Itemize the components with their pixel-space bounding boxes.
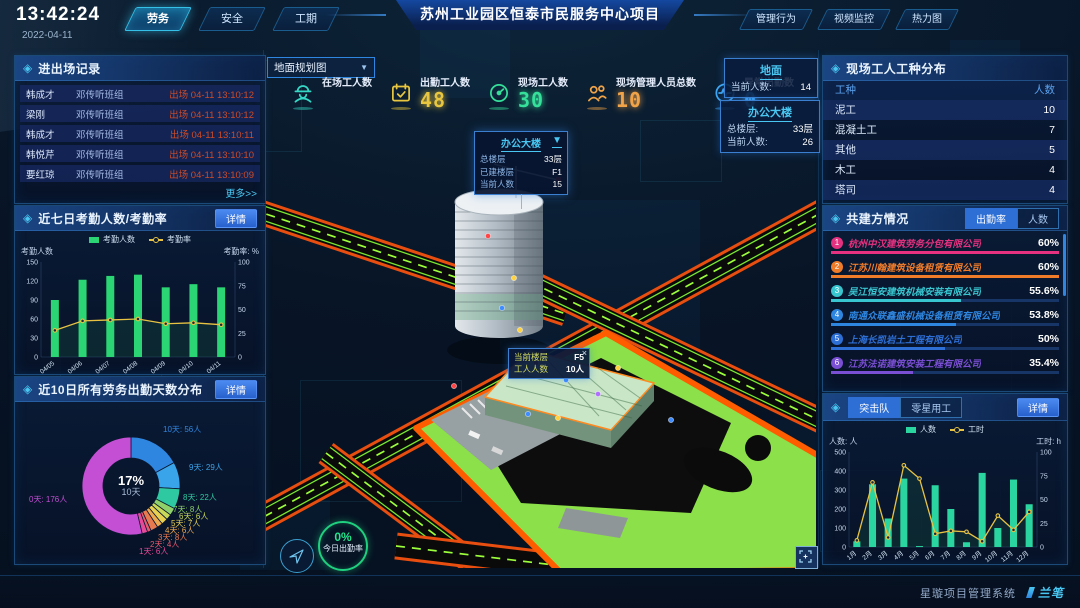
info-value: F1 — [552, 166, 562, 179]
stat-label: 在场工人数 — [322, 78, 372, 90]
svg-text:300: 300 — [834, 488, 846, 495]
today-attendance-gauge: 0% 今日出勤率 — [318, 521, 368, 571]
stat-value: 30 — [518, 90, 568, 111]
info-row: 当前人数:14 — [731, 81, 811, 94]
info-value: 33层 — [793, 123, 813, 136]
stat-出勤工人数: 出勤工人数48 — [388, 78, 470, 111]
fullscreen-icon — [796, 547, 815, 566]
tab-出勤率[interactable]: 出勤率 — [965, 208, 1017, 229]
attendance-rate: 60% — [1038, 237, 1059, 249]
panel-title: 共建方情况 — [846, 210, 909, 227]
tab-label: 管理行为 — [756, 10, 796, 29]
worker-name: 韩悦芹 — [26, 147, 76, 161]
brand-logo-icon — [1026, 587, 1035, 598]
left-axis-unit: 考勤人数 — [21, 246, 53, 257]
info-value: 10人 — [566, 363, 584, 375]
worker-type: 塔司 — [835, 180, 856, 200]
legend-line — [950, 429, 964, 431]
legend-label: 考勤人数 — [103, 234, 135, 245]
company-name: 江苏法诺建筑安装工程有限公司 — [848, 356, 981, 370]
svg-text:3月: 3月 — [876, 549, 889, 562]
diamond-icon: ◈ — [831, 212, 840, 224]
info-label: 总楼层 — [480, 153, 506, 166]
panel-title: 进出场记录 — [38, 60, 101, 77]
worker-type: 木工 — [835, 160, 856, 180]
svg-text:50: 50 — [238, 307, 246, 314]
attendance-rate: 35.4% — [1029, 357, 1059, 369]
stat-value: 48 — [420, 90, 470, 111]
attendance-chart: 0306090120150025507510004/0504/0604/0704… — [15, 257, 261, 375]
chevron-down-icon[interactable]: ▼ — [552, 135, 562, 148]
table-row: 其他5 — [823, 140, 1067, 160]
records-list: 韩成才邓传听班组出场 04-11 13:10:12梁刚邓传听班组出场 04-11… — [15, 81, 265, 182]
info-row: 工人人数10人 — [514, 363, 584, 375]
tower-overlay-card[interactable]: 办公大楼 总楼层:33层当前人数:26 — [720, 100, 820, 153]
tab-零星用工[interactable]: 零星用工 — [900, 397, 962, 418]
work-group: 邓传听班组 — [76, 87, 156, 101]
chart-legend: 考勤人数考勤率 — [15, 233, 265, 246]
clock-time: 13:42:24 — [16, 4, 100, 25]
rank-badge: 3 — [831, 285, 843, 297]
rank-badge: 6 — [831, 357, 843, 369]
compass-icon — [287, 546, 307, 566]
tab-视频监控[interactable]: 视频监控 — [817, 9, 891, 30]
axis-unit-labels: 人数: 人 工时: h — [823, 436, 1067, 447]
worker-name: 韩成才 — [26, 87, 76, 101]
tab-突击队[interactable]: 突击队 — [848, 397, 900, 418]
svg-text:4月: 4月 — [892, 549, 905, 562]
svg-text:1月: 1月 — [845, 549, 858, 562]
header-left-tabs: 劳务安全工期 — [130, 7, 334, 31]
svg-text:100: 100 — [834, 526, 846, 533]
info-value: 26 — [802, 136, 813, 149]
donut-label: 9天: 29人 — [189, 462, 223, 473]
rank-badge: 2 — [831, 261, 843, 273]
svg-text:100: 100 — [238, 260, 250, 267]
donut-label: 10天: 56人 — [163, 424, 201, 435]
worker-type-distribution-panel: ◈ 现场工人工种分布 工种 人数 泥工10混凝土工7其他5木工4塔司4 — [822, 55, 1068, 204]
partner-item[interactable]: 1杭州中汉建筑劳务分包有限公司60% — [831, 234, 1059, 254]
scrollbar[interactable] — [1063, 234, 1066, 296]
info-label: 已建楼层 — [480, 166, 514, 179]
worker-count: 4 — [1049, 160, 1055, 180]
svg-text:150: 150 — [26, 260, 38, 267]
rank-badge: 4 — [831, 309, 843, 321]
worker-type-table: 泥工10混凝土工7其他5木工4塔司4 — [823, 100, 1067, 200]
work-group: 邓传听班组 — [76, 167, 156, 181]
record-row[interactable]: 韩成才邓传听班组出场 04-11 13:10:11 — [20, 125, 260, 142]
svg-text:10月: 10月 — [983, 549, 999, 564]
legend-item: 考勤率 — [149, 234, 191, 245]
svg-text:04/08: 04/08 — [122, 360, 139, 375]
diamond-icon: ◈ — [831, 62, 840, 74]
work-group: 邓传听班组 — [76, 107, 156, 121]
legend-line — [149, 239, 163, 241]
worker-type: 其他 — [835, 140, 856, 160]
stat-现场工人数: 现场工人数30 — [486, 78, 568, 111]
company-name: 吴江恒安建筑机械安装有限公司 — [848, 284, 981, 298]
exit-time: 出场 04-11 13:10:09 — [169, 167, 254, 181]
worker-name: 韩成才 — [26, 127, 76, 141]
tab-人数[interactable]: 人数 — [1017, 208, 1059, 229]
svg-text:30: 30 — [30, 336, 38, 343]
chevron-down-icon: ▼ — [360, 63, 368, 72]
panel-title: 现场工人工种分布 — [846, 60, 946, 77]
gauge-icon — [486, 80, 512, 110]
company-name: 上海长凯岩土工程有限公司 — [848, 332, 962, 346]
svg-text:90: 90 — [30, 298, 38, 305]
worker-type: 泥工 — [835, 100, 856, 120]
rank-badge: 5 — [831, 333, 843, 345]
right-axis-unit: 工时: h — [1036, 436, 1061, 447]
attendance-rate: 60% — [1038, 261, 1059, 273]
svg-text:04/09: 04/09 — [150, 360, 167, 375]
partners-list: 1杭州中汉建筑劳务分包有限公司60%2江苏川翰建筑设备租赁有限公司60%3吴江恒… — [823, 231, 1067, 374]
tab-label: 视频监控 — [834, 10, 874, 29]
partner-item[interactable]: 3吴江恒安建筑机械安装有限公司55.6% — [831, 282, 1059, 302]
more-link[interactable]: 更多>> — [225, 185, 257, 200]
panel-header: ◈ 共建方情况 出勤率人数 — [823, 206, 1067, 231]
entry-exit-records-panel: ◈ 进出场记录 韩成才邓传听班组出场 04-11 13:10:12梁刚邓传听班组… — [14, 55, 266, 204]
legend-item: 人数 — [906, 424, 936, 435]
worker-count: 7 — [1049, 120, 1055, 140]
tab-label: 安全 — [221, 8, 243, 30]
footer: 星璇项目管理系统 兰笔 — [0, 575, 1080, 608]
partners-tabs: 出勤率人数 — [965, 208, 1059, 229]
info-label: 当前人数: — [727, 136, 768, 149]
diamond-icon: ◈ — [23, 212, 32, 224]
svg-text:400: 400 — [834, 469, 846, 476]
legend-label: 人数 — [920, 424, 936, 435]
legend-item: 工时 — [950, 424, 984, 435]
svg-text:75: 75 — [238, 283, 246, 290]
svg-text:9月: 9月 — [970, 549, 983, 562]
donut-chart-area: 17% 10天 10天: 56人9天: 29人8天: 22人7天: 8人6天: … — [15, 402, 265, 563]
brand-logo: 兰笔 — [1026, 584, 1064, 601]
clock-date: 2022-04-11 — [22, 30, 72, 41]
panel-title: 近10日所有劳务出勤天数分布 — [38, 381, 202, 398]
svg-text:04/10: 04/10 — [178, 360, 195, 375]
header-right-tabs: 管理行为视频监控热力图 — [744, 9, 954, 30]
system-name: 星璇项目管理系统 — [920, 585, 1016, 601]
company-name: 杭州中汉建筑劳务分包有限公司 — [848, 236, 981, 250]
attendance-rate: 50% — [1038, 333, 1059, 345]
teams-tabs: 突击队零星用工 — [848, 397, 962, 418]
record-row[interactable]: 韩悦芹邓传听班组出场 04-11 13:10:10 — [20, 145, 260, 162]
worker-type: 混凝土工 — [835, 120, 877, 140]
info-label: 总楼层: — [727, 123, 758, 136]
info-label: 工人人数 — [514, 363, 548, 375]
svg-text:04/07: 04/07 — [94, 360, 111, 375]
legend-label: 考勤率 — [167, 234, 191, 245]
info-row: 总楼层33层 — [480, 153, 562, 166]
title-banner: 苏州工业园区恒泰市民服务中心项目 — [396, 0, 684, 30]
panel-header: ◈ 近10日所有劳务出勤天数分布 详情 — [15, 377, 265, 402]
work-group: 邓传听班组 — [76, 127, 156, 141]
info-row: 当前人数15 — [480, 178, 562, 191]
tab-热力图[interactable]: 热力图 — [895, 9, 959, 30]
detail-button[interactable]: 详情 — [215, 209, 257, 228]
partners-panel: ◈ 共建方情况 出勤率人数 1杭州中汉建筑劳务分包有限公司60%2江苏川翰建筑设… — [822, 205, 1068, 392]
info-value: 15 — [553, 178, 562, 191]
diamond-icon: ◈ — [23, 383, 32, 395]
legend-label: 工时 — [968, 424, 984, 435]
exit-time: 出场 04-11 13:10:10 — [169, 147, 254, 161]
exit-time: 出场 04-11 13:10:12 — [169, 87, 254, 101]
info-row: 已建楼层F1 — [480, 166, 562, 179]
svg-text:0: 0 — [1040, 545, 1044, 552]
panel-header: ◈ 现场工人工种分布 — [823, 56, 1067, 81]
company-name: 南通众联鑫盛机械设备租赁有限公司 — [848, 308, 1000, 322]
people-icon — [584, 80, 610, 110]
attendance-rate: 55.6% — [1029, 285, 1059, 297]
svg-text:60: 60 — [30, 317, 38, 324]
exit-time: 出场 04-11 13:10:11 — [170, 127, 254, 141]
svg-text:75: 75 — [1040, 473, 1048, 480]
svg-text:12月: 12月 — [1015, 549, 1031, 564]
stat-在场工人数: 在场工人数 — [290, 78, 372, 111]
fullscreen-button[interactable] — [795, 546, 818, 569]
panel-header: ◈ 近七日考勤人数/考勤率 详情 — [15, 206, 265, 231]
partner-item[interactable]: 6江苏法诺建筑安装工程有限公司35.4% — [831, 354, 1059, 374]
stat-现场管理人员总数: 现场管理人员总数10 — [584, 78, 696, 111]
ground-overlay-card[interactable]: 地面 当前人数:14 — [724, 58, 818, 98]
info-value: 33层 — [544, 153, 562, 166]
svg-text:120: 120 — [26, 279, 38, 286]
info-row: 当前人数:26 — [727, 136, 813, 149]
distribution-donut — [15, 402, 263, 563]
donut-label: 8天: 22人 — [183, 492, 217, 503]
tab-label: 劳务 — [147, 8, 169, 30]
svg-text:7月: 7月 — [939, 549, 952, 562]
exit-time: 出场 04-11 13:10:12 — [169, 107, 254, 121]
legend-swatch — [89, 237, 99, 243]
tab-管理行为[interactable]: 管理行为 — [739, 9, 813, 30]
svg-text:04/06: 04/06 — [67, 360, 84, 375]
partner-item[interactable]: 4南通众联鑫盛机械设备租赁有限公司53.8% — [831, 306, 1059, 326]
table-row: 塔司4 — [823, 180, 1067, 200]
tab-安全[interactable]: 安全 — [198, 7, 266, 31]
tab-工期[interactable]: 工期 — [272, 7, 340, 31]
record-row[interactable]: 要红琼邓传听班组出场 04-11 13:10:09 — [20, 165, 260, 182]
tab-label: 热力图 — [912, 10, 942, 29]
svg-text:2月: 2月 — [861, 549, 874, 562]
tab-label: 工期 — [295, 8, 317, 30]
worker-icon — [290, 80, 316, 110]
tab-劳务[interactable]: 劳务 — [124, 7, 192, 31]
panel-header: ◈ 进出场记录 — [15, 56, 265, 81]
chart-legend: 人数工时 — [823, 423, 1067, 436]
svg-text:04/05: 04/05 — [39, 360, 56, 375]
table-row: 木工4 — [823, 160, 1067, 180]
panel-header: ◈ 突击队零星用工 详情 — [823, 394, 1067, 421]
company-name: 江苏川翰建筑设备租赁有限公司 — [848, 260, 981, 274]
clock: 13:42:24 2022-04-11 — [16, 5, 100, 43]
building-popup[interactable]: 办公大楼 ▼ 总楼层33层已建楼层F1当前人数15 — [474, 131, 568, 195]
legend-swatch — [906, 427, 916, 433]
stat-value — [322, 90, 372, 111]
svg-text:0: 0 — [34, 355, 38, 362]
floor-tooltip[interactable]: × 当前楼层F5工人人数10人 — [508, 348, 590, 379]
svg-text:11月: 11月 — [999, 549, 1014, 563]
svg-text:200: 200 — [834, 507, 846, 514]
info-value: 14 — [800, 81, 811, 94]
donut-label: 0天: 176人 — [29, 494, 67, 505]
teams-chart-panel: ◈ 突击队零星用工 详情 人数工时 人数: 人 工时: h 0100200300… — [822, 393, 1068, 565]
attendance-days-distribution-panel: ◈ 近10日所有劳务出勤天数分布 详情 17% 10天 10天: 56人9天: … — [14, 376, 266, 565]
record-row[interactable]: 韩成才邓传听班组出场 04-11 13:10:12 — [20, 85, 260, 102]
diamond-icon: ◈ — [831, 401, 840, 413]
svg-text:6月: 6月 — [923, 549, 936, 562]
stat-value: 10 — [616, 90, 696, 111]
left-axis-unit: 人数: 人 — [829, 436, 857, 447]
close-icon[interactable]: × — [582, 349, 587, 358]
svg-text:50: 50 — [1040, 497, 1048, 504]
map-view-select[interactable]: 地面规划图 ▼ — [267, 57, 375, 78]
svg-text:5月: 5月 — [908, 549, 921, 562]
info-row: 总楼层:33层 — [727, 123, 813, 136]
compass-control[interactable] — [280, 539, 314, 573]
partner-item[interactable]: 5上海长凯岩土工程有限公司50% — [831, 330, 1059, 350]
table-row: 混凝土工7 — [823, 120, 1067, 140]
svg-text:8月: 8月 — [955, 549, 968, 562]
svg-text:500: 500 — [834, 450, 846, 457]
table-header: 工种 人数 — [823, 81, 1067, 100]
info-label: 当前楼层 — [514, 351, 548, 363]
svg-text:04/11: 04/11 — [206, 360, 223, 375]
site-stats-row: 在场工人数出勤工人数48现场工人数30现场管理人员总数10异常出勤数0 — [290, 78, 794, 111]
detail-button[interactable]: 详情 — [1017, 398, 1059, 417]
worker-count: 4 — [1049, 180, 1055, 200]
table-row: 泥工10 — [823, 100, 1067, 120]
attendance-rate: 53.8% — [1029, 309, 1059, 321]
worker-count: 10 — [1043, 100, 1055, 120]
partner-item[interactable]: 2江苏川翰建筑设备租赁有限公司60% — [831, 258, 1059, 278]
worker-count: 5 — [1049, 140, 1055, 160]
page-title: 苏州工业园区恒泰市民服务中心项目 — [420, 6, 660, 22]
rank-badge: 1 — [831, 237, 843, 249]
detail-button[interactable]: 详情 — [215, 380, 257, 399]
svg-text:0: 0 — [238, 355, 242, 362]
worker-name: 梁刚 — [26, 107, 76, 121]
info-label: 当前人数 — [480, 178, 514, 191]
right-axis-unit: 考勤率: % — [223, 246, 259, 257]
calendar-icon — [388, 80, 414, 110]
worker-name: 要红琼 — [26, 167, 76, 181]
svg-text:100: 100 — [1040, 450, 1052, 457]
record-row[interactable]: 梁刚邓传听班组出场 04-11 13:10:12 — [20, 105, 260, 122]
work-group: 邓传听班组 — [76, 147, 156, 161]
svg-text:25: 25 — [1040, 521, 1048, 528]
donut-label: 1天: 6人 — [139, 546, 168, 557]
info-label: 当前人数: — [731, 81, 772, 94]
svg-text:0: 0 — [842, 545, 846, 552]
info-row: 当前楼层F5 — [514, 351, 584, 363]
svg-text:25: 25 — [238, 331, 246, 338]
teams-chart: 010020030040050002550751001月2月3月4月5月6月7月… — [823, 447, 1063, 565]
dashboard: 13:42:24 2022-04-11 劳务安全工期 苏州工业园区恒泰市民服务中… — [0, 0, 1080, 608]
diamond-icon: ◈ — [23, 62, 32, 74]
attendance-chart-panel: ◈ 近七日考勤人数/考勤率 详情 考勤人数考勤率 考勤人数 考勤率: % 030… — [14, 205, 266, 375]
axis-unit-labels: 考勤人数 考勤率: % — [15, 246, 265, 257]
banner-accent-left — [326, 14, 386, 16]
legend-item: 考勤人数 — [89, 234, 135, 245]
panel-title: 近七日考勤人数/考勤率 — [38, 210, 167, 227]
